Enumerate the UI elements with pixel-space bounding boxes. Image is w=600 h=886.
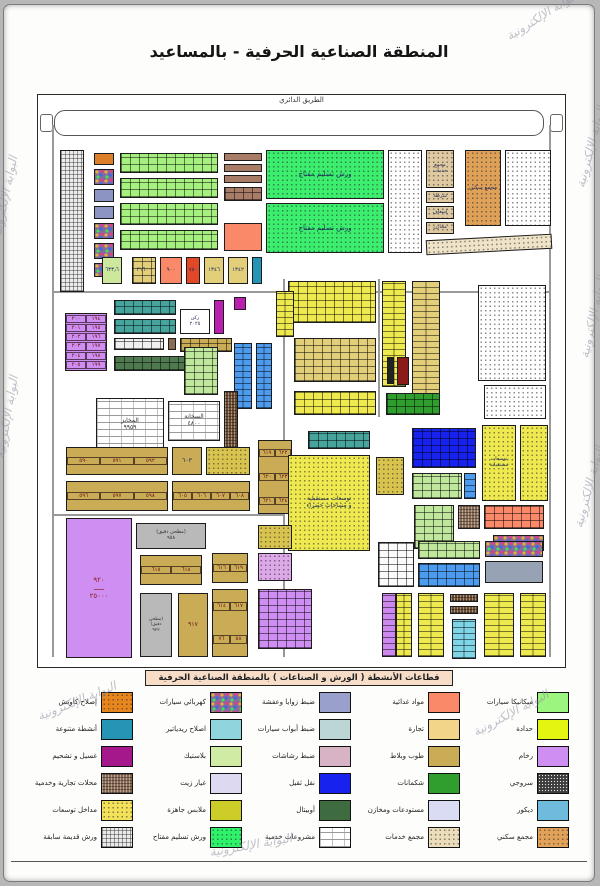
map-block: (مطحن دقيق)٩٥٨ [137, 523, 207, 549]
legend-label: مجمع خدمات [386, 834, 425, 842]
map-block [413, 428, 477, 468]
legend-item: كهربائي سيارات [139, 692, 243, 713]
parcel-number: ٦١٤ [214, 602, 231, 610]
legend-item: مشروعات خدمية [248, 827, 352, 848]
map-block [419, 593, 445, 657]
map-block [479, 285, 547, 381]
map-block: مخازن [427, 222, 455, 234]
legend-label: بلاستيك [185, 753, 207, 761]
legend-swatch [538, 692, 570, 713]
legend-item: مجمع خدمات [357, 827, 461, 848]
map-block: ٥٩٨٥٩٧٥٩٦ [67, 481, 169, 511]
map-block: توسعاتمستقبلية [483, 425, 517, 501]
legend-label: غسيل و تشحيم [53, 753, 98, 761]
map-block [95, 223, 115, 239]
legend-swatch [320, 773, 352, 794]
legend-label: طوب وبلاط [391, 753, 425, 761]
map-block: ٣١٦٠٠ [133, 257, 157, 284]
map-block: (مطحندقيق)٩٢٢ [141, 593, 173, 657]
map-block-label: مجمع خدمات [428, 163, 454, 175]
legend-label: كهربائي سيارات [160, 699, 207, 707]
map-block-label: ٤٨٠٠ [189, 421, 202, 428]
map-block [169, 338, 177, 350]
parcel-number: ١٩٥ [87, 324, 107, 332]
legend-label: محلات تجارية وخدمية [36, 780, 98, 788]
map-block-label: ٧٥٠ [190, 268, 198, 274]
map-block [253, 257, 263, 284]
legend-item: تجارة [357, 719, 461, 740]
map-block [459, 505, 481, 529]
legend-label: اصلاح ريدياتير [167, 726, 207, 734]
map-block: إسعاف [427, 206, 455, 219]
map-block: ١٣٤٦ [205, 257, 225, 284]
map-block [397, 593, 413, 657]
map-block: ركن٢٠٢٥ [181, 309, 211, 334]
parcel-number: ٦٢١ [260, 497, 276, 505]
parcel-number: ٥٩٧ [101, 492, 134, 500]
map-block [419, 563, 481, 587]
legend-label: ضبط زوايا وعفشة [263, 699, 316, 707]
legend-swatch [429, 827, 461, 848]
parcel-number: ٦٠٨ [231, 492, 250, 500]
legend-label: مستودعات ومخازن [369, 807, 425, 815]
map-block [453, 619, 477, 659]
legend-swatch [102, 773, 134, 794]
legend-swatch [320, 719, 352, 740]
legend-swatch [211, 773, 243, 794]
legend-title: قطاعات الأنشطة ( الورش و الصناعات ) بالم… [146, 670, 453, 686]
map-block-label: ٩٢٢ [153, 628, 160, 633]
legend-swatch [429, 800, 461, 821]
legend-label: ديكور [518, 807, 534, 815]
map-block-label: ١٣٤٢ [233, 267, 245, 273]
legend-swatch [211, 719, 243, 740]
legend-item: إصلاح كاوتش [30, 692, 134, 713]
legend-swatch [211, 800, 243, 821]
map-block: مجمع خدمات [427, 150, 455, 188]
map-block-label: ٩٢٠ [94, 576, 105, 584]
map-block [289, 281, 377, 323]
parcel-number: ٦٠٥ [174, 492, 193, 500]
parcel-number: ٦١٦ [214, 564, 231, 572]
legend-label: مجمع سكني [498, 834, 534, 842]
parcel-number: ٥٨ [231, 635, 248, 643]
map-block: ٦١٩٦١٦ [213, 553, 249, 583]
map-block [277, 291, 295, 337]
legend-swatch [211, 827, 243, 848]
legend-swatch [538, 800, 570, 821]
map-block [115, 300, 177, 315]
legend-label: مواد غدائية [393, 699, 425, 707]
map-block: ٩١٧ [179, 593, 209, 657]
legend-label: أوبيتال [297, 807, 316, 815]
parcel-number: ٢٠٤ [67, 352, 87, 360]
legend-label: غيار زيت [181, 780, 207, 788]
parcel-number: ٢٠٢ [67, 333, 87, 341]
legend-item: محلات تجارية وخدمية [30, 773, 134, 794]
legend-swatch [320, 827, 352, 848]
parcel-number: ٦١٨ [172, 566, 202, 574]
legend-swatch [102, 827, 134, 848]
legend-item: طوب وبلاط [357, 746, 461, 767]
legend-label: تجارة [409, 726, 425, 734]
map-block [387, 393, 441, 415]
map-block-label: و مساحات خضراء [308, 503, 353, 510]
legend-item: رخام [466, 746, 570, 767]
legend-label: ضبط أبواب سيارات [259, 726, 316, 734]
map-block [465, 473, 477, 499]
parcel-number: ١٩٦ [87, 333, 107, 341]
map-block [377, 457, 405, 495]
legend-item: ضبط رشاشات [248, 746, 352, 767]
parcel-number: ٧٦ [214, 635, 231, 643]
legend-label: أنشطة متنوعة [57, 726, 98, 734]
map-block [61, 150, 85, 292]
map-block [451, 594, 479, 602]
map-block: ٦١٧٦١٤٥٨٧٦ [213, 589, 249, 657]
legend-swatch [429, 746, 461, 767]
road-line [53, 125, 55, 657]
map-block [379, 542, 415, 587]
legend-item: مواد غدائية [357, 692, 461, 713]
map-block-label: ٢٥٠٠٠ [91, 592, 110, 600]
legend-swatch [538, 719, 570, 740]
parcel-number: ٦٢٠ [260, 473, 276, 481]
legend-label: سروجي [511, 780, 534, 788]
map-block: شرطة [427, 191, 455, 203]
map-block [225, 391, 239, 451]
parcel-number: ١٩٨ [87, 352, 107, 360]
parcel-number: ١٩٤ [87, 315, 107, 323]
legend-label: نقل ثقيل [290, 780, 316, 788]
parcel-number: ٦١٩ [231, 564, 248, 572]
map-block [225, 175, 263, 183]
map-block: ٩٢٠ـــــ٢٥٠٠٠ [67, 518, 133, 658]
map-block [486, 561, 544, 583]
map-block [388, 357, 395, 384]
legend-swatch [320, 746, 352, 767]
legend-item: ضبط أبواب سيارات [248, 719, 352, 740]
map-block: مجمع سكني [466, 150, 502, 226]
legend-item: أنشطة متنوعة [30, 719, 134, 740]
parcel-number: ١٩٧ [87, 342, 107, 350]
legend-label: ضبط رشاشات [273, 753, 316, 761]
parcel-number: ٥٩١ [101, 457, 134, 465]
map-block-label: ٢٠٢٥ [191, 322, 202, 328]
map-block: ٩٠٠ [161, 257, 183, 284]
map-block: ٦٢٢٦١٩٦٢٣٦٢٠٦٢٤٦٢١ [259, 440, 293, 514]
map-block [259, 589, 313, 649]
map-block [121, 178, 219, 198]
parcel-number: ٢٠٠ [67, 315, 87, 323]
parcel-number: ٥٩٨ [135, 492, 168, 500]
map-block: ٦٣٣٫٦ [103, 257, 123, 284]
map-block-label: ٩٠٠ [168, 267, 177, 273]
legend-label: شكمانات [398, 780, 425, 788]
parcel-number: ٥٩٦ [68, 492, 101, 500]
legend-swatch [538, 827, 570, 848]
bottom-rule [12, 861, 588, 862]
map-block [121, 153, 219, 173]
map-block-label: ورش تسليم مفتاح [299, 224, 352, 232]
road-line [379, 279, 381, 417]
parcel-number: ١٩٩ [87, 361, 107, 369]
legend-item: سروجي [466, 773, 570, 794]
map-canvas: ورش تسليم مفتاحورش تسليم مفتاحمجمع خدمات… [39, 95, 566, 667]
legend-label: ملابس جاهزة [168, 807, 207, 815]
legend-swatch [429, 719, 461, 740]
legend-grid: ميكانيكا سياراتمواد غدائيةضبط زوايا وعفش… [30, 692, 570, 848]
map-block [521, 425, 549, 501]
legend-swatch [538, 746, 570, 767]
map-block [389, 150, 423, 253]
legend-swatch [538, 773, 570, 794]
map-block [121, 203, 219, 225]
legend-label: مداخل توسعات [53, 807, 98, 815]
map-block [398, 357, 410, 385]
map-block-label: ـــــ [95, 584, 105, 592]
map-block-label: ٩٩٥٩ [125, 425, 138, 432]
legend-item: ميكانيكا سيارات [466, 692, 570, 713]
map-block: ٥٩٢٥٩١٥٩٠ [67, 447, 169, 475]
map-block [485, 505, 545, 529]
legend-item: أوبيتال [248, 800, 352, 821]
legend-item: ديكور [466, 800, 570, 821]
legend-swatch [102, 719, 134, 740]
legend-item: بلاستيك [139, 746, 243, 767]
page-title: المنطقة الصناعية الحرفية - بالمساعيد [0, 42, 600, 61]
map-block: ١٣٤٢ [229, 257, 249, 284]
parcel-number: ٦١٧ [231, 602, 248, 610]
scanned-plan-page: { "title": "المنطقة الصناعية الحرفية - ب… [0, 0, 600, 886]
legend-item: مجمع سكني [466, 827, 570, 848]
map-block-label: ٩١٧ [189, 622, 199, 629]
map-block [485, 593, 515, 657]
map-block [259, 525, 293, 549]
map-block [235, 297, 247, 310]
map-block: المخابز٩٩٥٩ [97, 398, 165, 452]
map-block: ٧٥٠ [187, 257, 201, 284]
map-block: توسعات مستقبليةو مساحات خضراء [289, 455, 371, 551]
map-block [121, 230, 219, 250]
map-block [506, 150, 552, 226]
map-block [383, 593, 397, 657]
legend-swatch [320, 692, 352, 713]
map-block [427, 234, 554, 256]
map-block: ورش تسليم مفتاح [267, 150, 385, 199]
legend-item: اصلاح ريدياتير [139, 719, 243, 740]
map-block [225, 223, 263, 251]
road-line [53, 514, 285, 516]
legend-swatch [211, 746, 243, 767]
map-block [486, 541, 544, 557]
legend: قطاعات الأنشطة ( الورش و الصناعات ) بالم… [30, 670, 570, 848]
parcel-number: ٢٠٥ [67, 361, 87, 369]
parcel-number: ٢٠١ [67, 324, 87, 332]
legend-swatch [102, 746, 134, 767]
map-block-label: إسعاف [434, 210, 449, 216]
map-block [521, 593, 547, 657]
legend-swatch [320, 800, 352, 821]
map-block [215, 300, 225, 334]
legend-label: ورش تسليم مفتاح [154, 834, 207, 842]
map-block-label: مخازن [434, 225, 448, 231]
parcel-number: ٥٩٠ [68, 457, 101, 465]
map-block [225, 153, 263, 161]
legend-item: غسيل و تشحيم [30, 746, 134, 767]
map-block-label: ورش تسليم مفتاح [299, 170, 352, 178]
legend-swatch [429, 773, 461, 794]
map-block: ٦١٨٦١٥ [141, 555, 203, 585]
legend-item: نقل ثقيل [248, 773, 352, 794]
legend-swatch [102, 800, 134, 821]
map-block [295, 391, 377, 415]
map-block-label: شرطة [434, 194, 448, 200]
legend-item: مداخل توسعات [30, 800, 134, 821]
map-block [295, 338, 377, 382]
legend-swatch [211, 692, 243, 713]
map-block-label: ٩٥٨ [168, 536, 176, 542]
map-block [95, 189, 115, 202]
map-block-label: ٦٣٣٫٦ [106, 267, 120, 273]
map-block [309, 431, 371, 449]
map-block [485, 385, 547, 419]
legend-label: مشروعات خدمية [266, 834, 316, 842]
legend-label: ورش قديمة سابقة [44, 834, 98, 842]
legend-label: إصلاح كاوتش [59, 699, 98, 707]
map-block-label: مجمع سكني [470, 185, 498, 191]
legend-swatch [102, 692, 134, 713]
legend-item: مستودعات ومخازن [357, 800, 461, 821]
map-block: ٦٠٣ [173, 447, 203, 475]
map-block [413, 473, 463, 499]
map-block-label: ٣١٦٠٠ [138, 267, 153, 273]
map-block [185, 347, 219, 395]
legend-item: حدادة [466, 719, 570, 740]
parcel-number: ٢٠٣ [67, 342, 87, 350]
parcel-number: ٦٠٦ [193, 492, 212, 500]
map-block-label: ٦٠٣ [183, 458, 193, 465]
legend-label: ميكانيكا سيارات [488, 699, 534, 707]
map-block-label: مستقبلية [491, 463, 510, 469]
map-block: ١٩٤٢٠٠١٩٥٢٠١١٩٦٢٠٢١٩٧٢٠٣١٩٨٢٠٤١٩٩٢٠٥ [66, 313, 108, 371]
legend-item: ورش تسليم مفتاح [139, 827, 243, 848]
map-block [115, 338, 165, 350]
map-block: السخانة٤٨٠٠ [169, 401, 221, 441]
map-block [207, 447, 251, 475]
map-block [95, 153, 115, 165]
legend-item: ورش قديمة سابقة [30, 827, 134, 848]
parcel-number: ٦١٩ [260, 449, 276, 457]
map-block: ورش تسليم مفتاح [267, 203, 385, 253]
legend-swatch [429, 692, 461, 713]
parcel-number: ٦١٥ [142, 566, 172, 574]
legend-label: رخام [520, 753, 534, 761]
map-block [225, 187, 263, 201]
zoning-map: الطريق الدائري ورش تسليم مفتاحورش تسليم … [38, 94, 567, 668]
parcel-number: ٥٩٢ [135, 457, 168, 465]
map-block-label: ١٣٤٦ [209, 267, 221, 273]
parcel-number: ٦٠٧ [212, 492, 231, 500]
ring-road-label: الطريق الدائري [39, 96, 566, 104]
map-block [115, 319, 177, 334]
map-block [259, 553, 293, 581]
map-block [257, 343, 273, 409]
legend-item: شكمانات [357, 773, 461, 794]
map-block [451, 606, 479, 614]
legend-item: غيار زيت [139, 773, 243, 794]
map-block [225, 164, 263, 172]
map-block [95, 206, 115, 219]
legend-item: ضبط زوايا وعفشة [248, 692, 352, 713]
map-block: ٦٠٨٦٠٧٦٠٦٦٠٥ [173, 481, 251, 511]
legend-item: ملابس جاهزة [139, 800, 243, 821]
legend-label: حدادة [517, 726, 534, 734]
map-block [419, 541, 481, 559]
map-block [95, 169, 115, 185]
